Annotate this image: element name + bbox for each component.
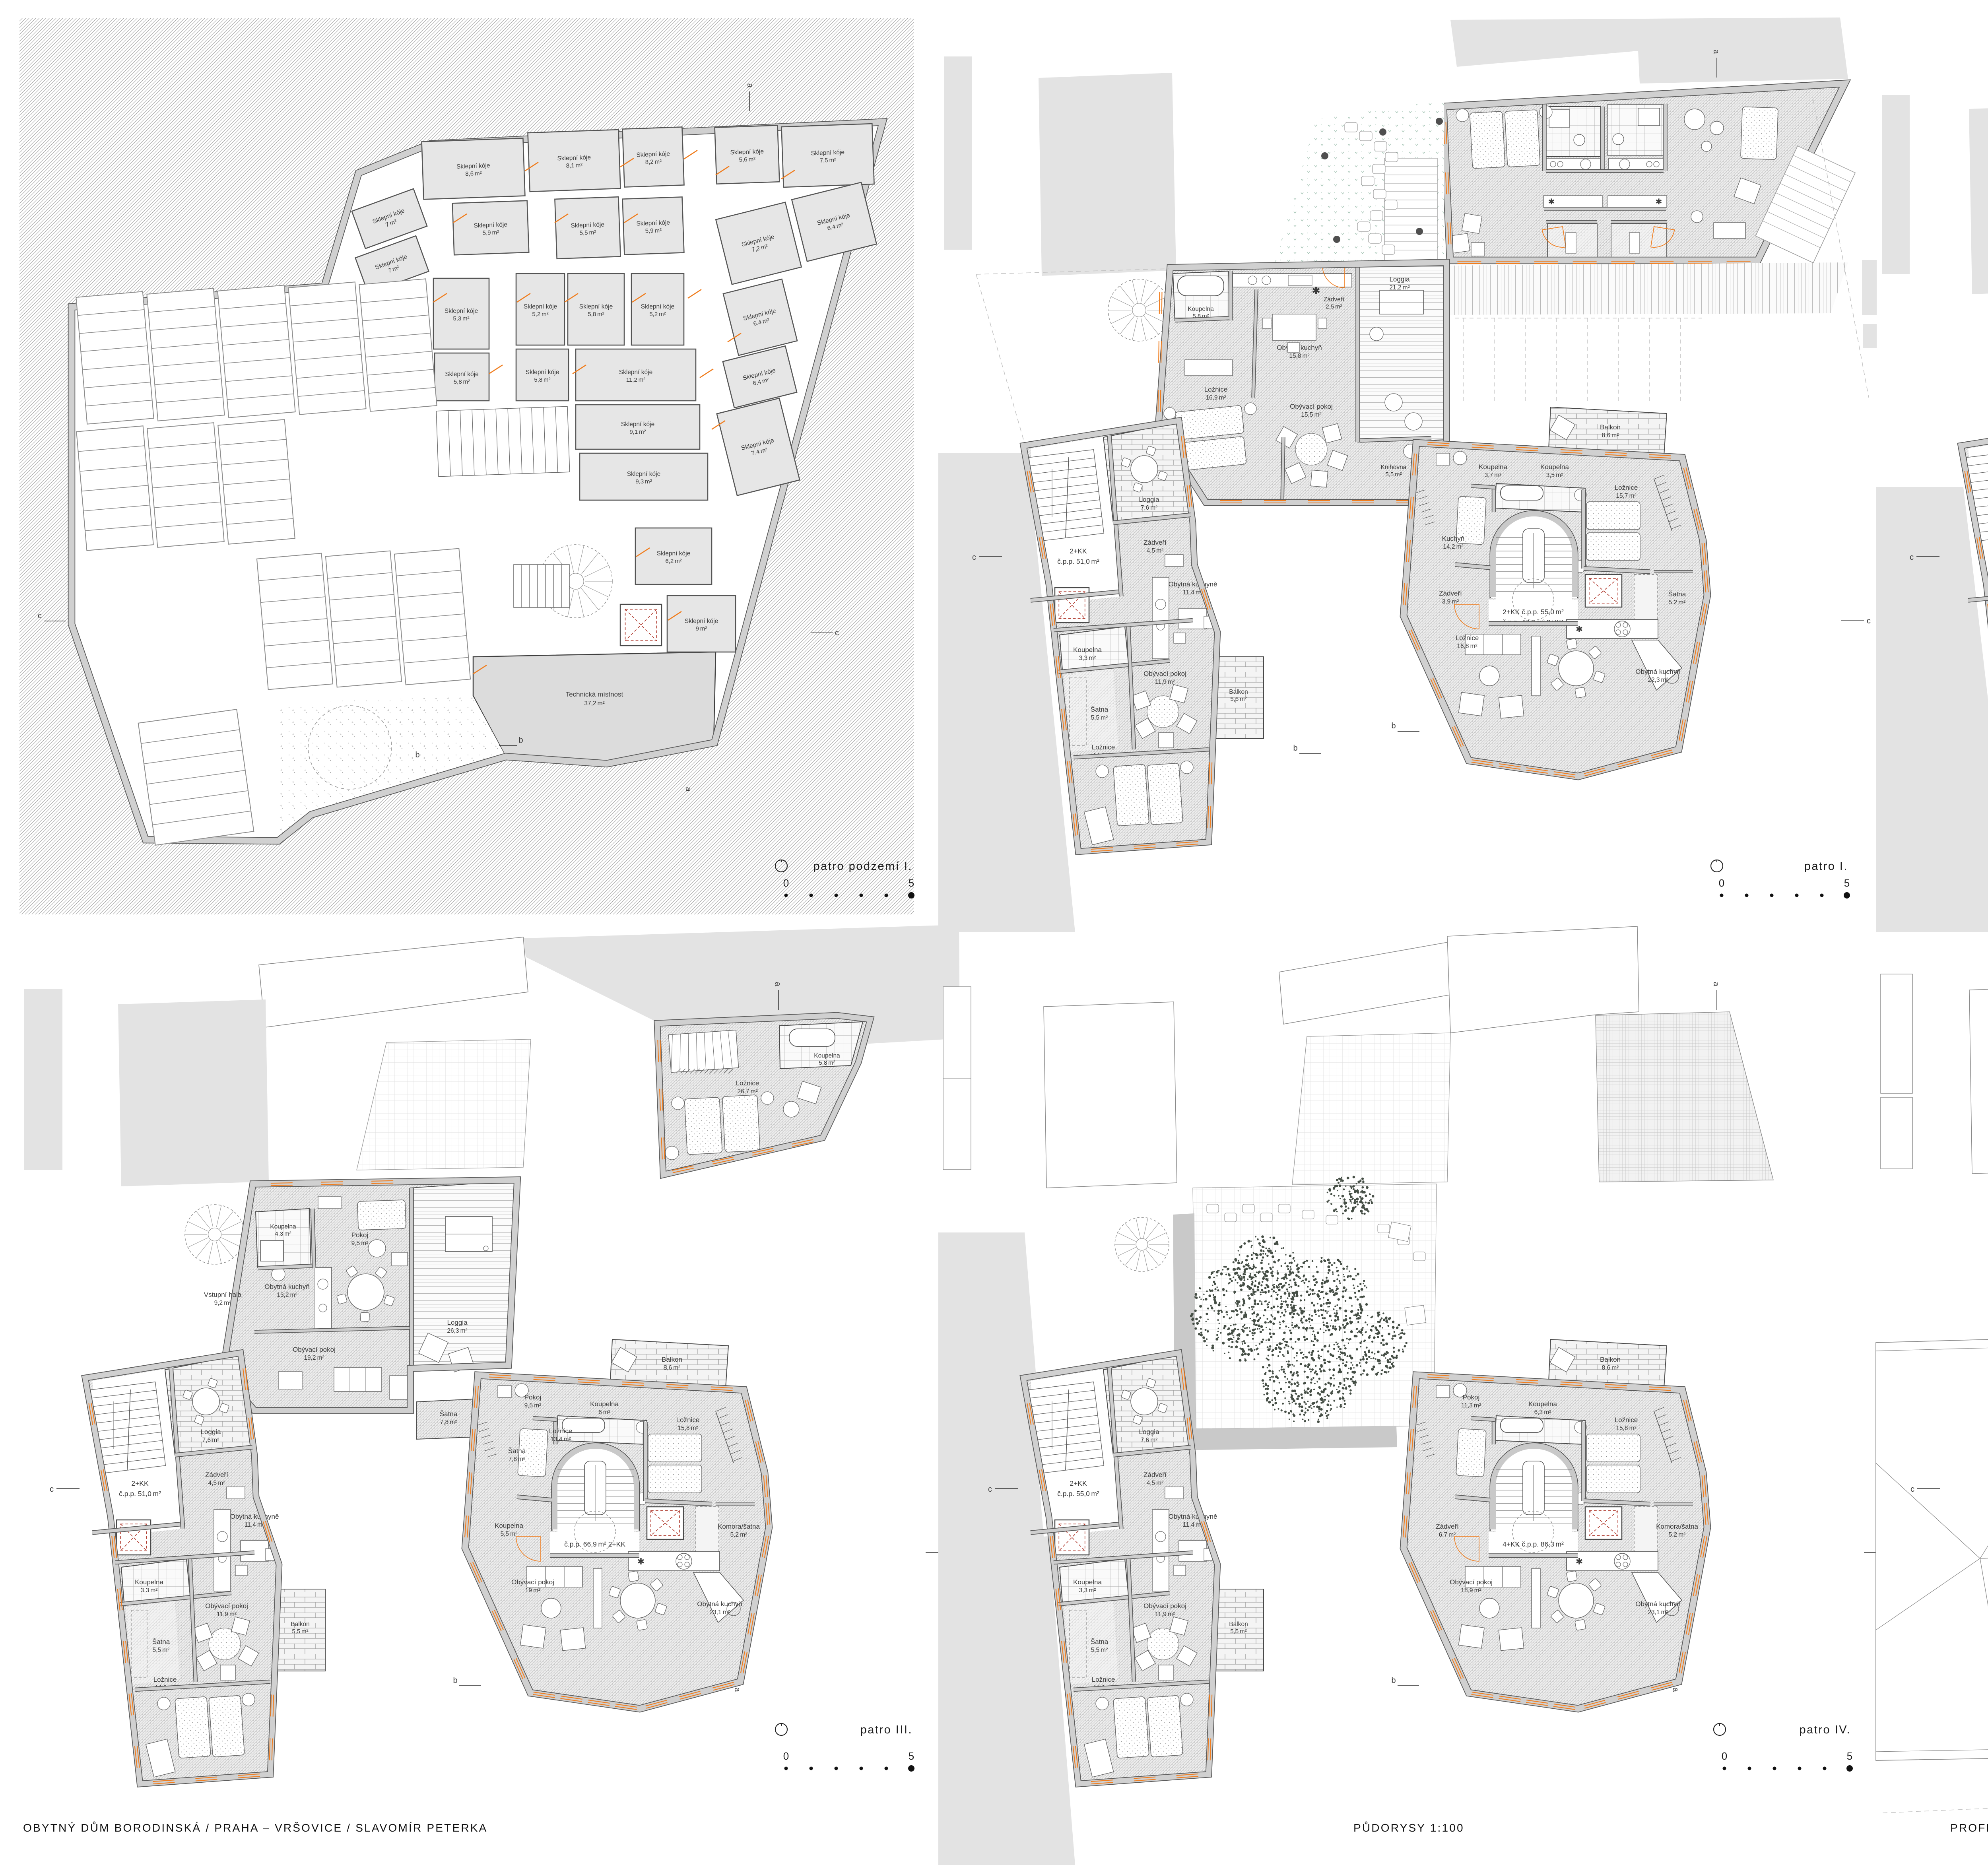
svg-text:26,7 m²: 26,7 m² xyxy=(737,1088,757,1095)
svg-text:5,3 m²: 5,3 m² xyxy=(453,315,469,322)
svg-text:Sklepní kóje: Sklepní kóje xyxy=(445,308,478,314)
svg-text:Obytná kuchyň: Obytná kuchyň xyxy=(697,1600,742,1608)
svg-text:Balkon: Balkon xyxy=(1229,689,1248,695)
svg-text:Sklepní kóje: Sklepní kóje xyxy=(474,221,507,229)
svg-text:5,5 m²: 5,5 m² xyxy=(579,229,596,236)
svg-text:Sklepní kóje: Sklepní kóje xyxy=(636,219,670,227)
svg-text:Šatna: Šatna xyxy=(1668,590,1686,598)
svg-text:a: a xyxy=(1712,49,1720,54)
svg-text:Kuchyň: Kuchyň xyxy=(1442,535,1465,542)
svg-text:Koupelna: Koupelna xyxy=(590,1400,619,1408)
svg-text:8,6 m²: 8,6 m² xyxy=(465,170,482,177)
svg-text:Ložnice: Ložnice xyxy=(1615,1416,1638,1424)
svg-text:b: b xyxy=(1293,744,1297,753)
svg-text:Koupelna: Koupelna xyxy=(135,1578,163,1586)
svg-text:6 m²: 6 m² xyxy=(598,1409,610,1416)
svg-text:3,9 m²: 3,9 m² xyxy=(1442,598,1459,605)
svg-text:Zádveří: Zádveří xyxy=(1143,539,1167,546)
svg-text:Obývací pokoj: Obývací pokoj xyxy=(205,1602,248,1610)
svg-text:Ložnice: Ložnice xyxy=(1092,743,1115,751)
svg-text:Pokoj: Pokoj xyxy=(524,1393,542,1401)
svg-text:5,2 m²: 5,2 m² xyxy=(532,311,548,318)
svg-text:a: a xyxy=(1712,982,1720,986)
svg-text:Obytná kuchyň: Obytná kuchyň xyxy=(264,1283,309,1291)
svg-text:b: b xyxy=(1391,1676,1396,1685)
svg-text:5,2 m²: 5,2 m² xyxy=(1669,599,1686,606)
svg-text:Obývací pokoj: Obývací pokoj xyxy=(1290,403,1333,410)
svg-text:Sklepní kóje: Sklepní kóje xyxy=(657,550,690,557)
svg-text:patro podzemí I.: patro podzemí I. xyxy=(813,860,912,873)
svg-text:5,2 m²: 5,2 m² xyxy=(730,1531,747,1538)
svg-text:Sklepní kóje: Sklepní kóje xyxy=(627,471,660,477)
svg-text:7,6 m²: 7,6 m² xyxy=(1141,505,1158,511)
svg-text:11,9 m²: 11,9 m² xyxy=(1155,1611,1175,1618)
svg-text:Obývací pokoj: Obývací pokoj xyxy=(293,1346,336,1353)
svg-text:5,8 m²: 5,8 m² xyxy=(819,1060,835,1066)
svg-text:Sklepní kóje: Sklepní kóje xyxy=(456,162,490,170)
svg-text:3,5 m²: 3,5 m² xyxy=(1546,472,1563,479)
svg-text:✱: ✱ xyxy=(1312,285,1320,297)
svg-text:9,2 m²: 9,2 m² xyxy=(214,1300,231,1306)
svg-text:23,1 m²: 23,1 m² xyxy=(1648,1609,1668,1616)
svg-text:a: a xyxy=(1671,1687,1680,1692)
svg-text:Sklepní kóje: Sklepní kóje xyxy=(641,303,674,310)
svg-text:č.p.p. 51,0 m²: č.p.p. 51,0 m² xyxy=(1057,557,1099,565)
svg-text:0: 0 xyxy=(783,1750,789,1762)
svg-text:Ložnice: Ložnice xyxy=(736,1079,759,1087)
svg-text:5,5 m²: 5,5 m² xyxy=(1385,471,1402,478)
svg-text:Šatna: Šatna xyxy=(1091,706,1109,713)
svg-text:5: 5 xyxy=(1847,1750,1852,1762)
svg-text:a: a xyxy=(733,1687,742,1692)
svg-text:7,8 m²: 7,8 m² xyxy=(440,1419,457,1426)
svg-text:Knihovna: Knihovna xyxy=(1381,464,1407,471)
svg-text:5,8 m²: 5,8 m² xyxy=(588,311,604,318)
svg-text:Sklepní kóje: Sklepní kóje xyxy=(526,369,559,376)
svg-text:2+KK č.p.p. 55,0 m²: 2+KK č.p.p. 55,0 m² xyxy=(1503,608,1564,616)
svg-text:19 m²: 19 m² xyxy=(525,1587,540,1594)
svg-text:21,2 m²: 21,2 m² xyxy=(1389,284,1409,291)
svg-text:b: b xyxy=(453,1676,457,1685)
svg-text:Obytná kuchyň: Obytná kuchyň xyxy=(1635,1600,1680,1608)
svg-text:Koupelna: Koupelna xyxy=(814,1052,840,1059)
svg-text:18,9 m²: 18,9 m² xyxy=(1461,1587,1481,1594)
svg-text:Loggia: Loggia xyxy=(200,1428,221,1436)
svg-text:2+KK: 2+KK xyxy=(131,1479,149,1487)
svg-text:Šatna: Šatna xyxy=(1091,1638,1109,1646)
svg-text:8,6 m²: 8,6 m² xyxy=(1602,432,1619,439)
svg-text:c: c xyxy=(1910,553,1914,562)
svg-text:Sklepní kóje: Sklepní kóje xyxy=(445,371,478,378)
svg-text:11,9 m²: 11,9 m² xyxy=(217,1611,237,1618)
svg-text:Komora/šatna: Komora/šatna xyxy=(1656,1523,1698,1530)
svg-text:Ložnice: Ložnice xyxy=(1615,484,1638,491)
svg-text:Ložnice: Ložnice xyxy=(1092,1676,1115,1683)
svg-text:Balkon: Balkon xyxy=(1600,423,1621,431)
svg-text:Sklepní kóje: Sklepní kóje xyxy=(524,303,557,310)
svg-text:15,7 m²: 15,7 m² xyxy=(1616,493,1636,499)
svg-text:Obývací pokoj: Obývací pokoj xyxy=(1143,1602,1186,1610)
svg-text:Koupelna: Koupelna xyxy=(1540,463,1569,471)
svg-text:8,6 m²: 8,6 m² xyxy=(1602,1364,1619,1371)
svg-text:Sklepní kóje: Sklepní kóje xyxy=(636,151,670,159)
svg-text:22,3 m²: 22,3 m² xyxy=(1648,677,1668,683)
svg-text:Pokoj: Pokoj xyxy=(351,1231,369,1239)
svg-text:Obytná kuchyně: Obytná kuchyně xyxy=(1169,1513,1217,1520)
svg-text:b: b xyxy=(518,736,523,745)
svg-text:3,7 m²: 3,7 m² xyxy=(1485,472,1502,479)
svg-text:2+KK: 2+KK xyxy=(1070,547,1087,555)
svg-text:Sklepní kóje: Sklepní kóje xyxy=(579,303,613,310)
svg-text:patro IV.: patro IV. xyxy=(1800,1723,1851,1736)
svg-text:5,8 m²: 5,8 m² xyxy=(454,378,470,385)
svg-text:c: c xyxy=(1910,1485,1914,1494)
svg-text:c: c xyxy=(988,1485,992,1494)
svg-text:11,3 m²: 11,3 m² xyxy=(1461,1402,1481,1409)
svg-text:14,2 m²: 14,2 m² xyxy=(1443,543,1463,550)
svg-text:6,3 m²: 6,3 m² xyxy=(1534,1409,1551,1416)
svg-text:8,6 m²: 8,6 m² xyxy=(664,1364,681,1371)
svg-text:7,8 m²: 7,8 m² xyxy=(509,1456,526,1463)
svg-text:5,5 m²: 5,5 m² xyxy=(1230,696,1246,703)
svg-text:Balkon: Balkon xyxy=(1600,1356,1621,1363)
svg-text:č.p.p. 51,0 m²: č.p.p. 51,0 m² xyxy=(119,1490,161,1498)
svg-text:5,5 m²: 5,5 m² xyxy=(501,1531,518,1537)
svg-text:Loggia: Loggia xyxy=(1139,1428,1159,1436)
svg-text:5,9 m²: 5,9 m² xyxy=(645,227,662,234)
svg-text:PŮDORYSY 1:100: PŮDORYSY 1:100 xyxy=(1353,1821,1464,1834)
svg-text:Balkon: Balkon xyxy=(1229,1621,1248,1628)
svg-text:9,5 m²: 9,5 m² xyxy=(524,1402,542,1409)
svg-text:Sklepní kóje: Sklepní kóje xyxy=(571,221,604,229)
svg-text:c: c xyxy=(835,629,839,637)
svg-text:č.p.p. 66,9 m² 2+KK: č.p.p. 66,9 m² 2+KK xyxy=(564,1540,625,1548)
svg-text:2,5 m²: 2,5 m² xyxy=(1326,303,1342,310)
svg-text:Zádveří: Zádveří xyxy=(205,1471,228,1479)
svg-text:Obytná kuchyň: Obytná kuchyň xyxy=(1635,668,1680,675)
svg-text:Loggia: Loggia xyxy=(1389,276,1410,283)
svg-text:6,2 m²: 6,2 m² xyxy=(665,558,681,565)
svg-text:Koupelna: Koupelna xyxy=(1528,1400,1557,1408)
svg-text:15,8 m²: 15,8 m² xyxy=(1289,353,1309,359)
svg-text:11,2 m²: 11,2 m² xyxy=(626,376,646,383)
svg-text:0: 0 xyxy=(1719,877,1724,889)
svg-text:5,2 m²: 5,2 m² xyxy=(649,311,666,318)
svg-text:OBYTNÝ DŮM BORODINSKÁ / PRAHA: OBYTNÝ DŮM BORODINSKÁ / PRAHA – VRŠOVICE… xyxy=(23,1821,488,1834)
svg-text:Technická místnost: Technická místnost xyxy=(566,691,623,698)
svg-text:✱: ✱ xyxy=(1548,198,1555,206)
svg-text:7,5 m²: 7,5 m² xyxy=(819,157,836,164)
svg-text:8,2 m²: 8,2 m² xyxy=(645,158,662,165)
svg-text:Ložnice: Ložnice xyxy=(1204,386,1228,393)
svg-text:4,3 m²: 4,3 m² xyxy=(275,1230,291,1237)
svg-text:Sklepní kóje: Sklepní kóje xyxy=(811,149,845,157)
svg-text:5: 5 xyxy=(1844,877,1850,889)
svg-text:Obývací pokoj: Obývací pokoj xyxy=(511,1578,554,1586)
svg-text:Šatna: Šatna xyxy=(508,1447,526,1455)
svg-text:Obývací pokoj: Obývací pokoj xyxy=(1450,1578,1493,1586)
svg-text:✱: ✱ xyxy=(1656,198,1662,206)
svg-text:4,5 m²: 4,5 m² xyxy=(208,1480,225,1487)
svg-text:3,3 m²: 3,3 m² xyxy=(1079,1587,1096,1594)
svg-text:a: a xyxy=(745,83,754,88)
svg-text:5,6 m²: 5,6 m² xyxy=(739,156,755,163)
svg-text:4+KK č.p.p. 86,3 m²: 4+KK č.p.p. 86,3 m² xyxy=(1503,1540,1564,1548)
svg-text:23,1 m²: 23,1 m² xyxy=(709,1609,730,1616)
svg-text:Balkon: Balkon xyxy=(662,1356,682,1363)
svg-text:5,5 m²: 5,5 m² xyxy=(1230,1628,1246,1635)
svg-text:6,7 m²: 6,7 m² xyxy=(1439,1531,1456,1538)
svg-text:č.p.p. 55,0 m²: č.p.p. 55,0 m² xyxy=(1057,1490,1099,1498)
svg-text:3,3 m²: 3,3 m² xyxy=(1079,655,1096,662)
svg-text:Obytná kuchyně: Obytná kuchyně xyxy=(1169,580,1217,588)
svg-text:b: b xyxy=(415,751,419,759)
svg-text:Obývací pokoj: Obývací pokoj xyxy=(1143,670,1186,677)
svg-text:c: c xyxy=(1867,617,1871,625)
svg-text:5,5 m²: 5,5 m² xyxy=(1091,1647,1108,1653)
svg-text:c: c xyxy=(50,1485,54,1494)
svg-text:5,8 m²: 5,8 m² xyxy=(534,376,550,383)
svg-text:9,1 m²: 9,1 m² xyxy=(629,429,646,435)
svg-text:c: c xyxy=(972,553,976,562)
svg-text:5,9 m²: 5,9 m² xyxy=(482,229,499,236)
svg-text:26,3 m²: 26,3 m² xyxy=(447,1327,467,1334)
svg-text:13,2 m²: 13,2 m² xyxy=(277,1292,297,1298)
svg-text:37,2 m²: 37,2 m² xyxy=(584,700,604,707)
svg-text:11,9 m²: 11,9 m² xyxy=(1155,679,1175,685)
svg-text:0: 0 xyxy=(1722,1750,1727,1762)
svg-text:3,3 m²: 3,3 m² xyxy=(141,1587,158,1594)
svg-text:9,5 m²: 9,5 m² xyxy=(351,1240,369,1247)
svg-text:2+KK: 2+KK xyxy=(1070,1479,1087,1487)
svg-text:Ložnice: Ložnice xyxy=(549,1427,573,1435)
svg-text:15,8 m²: 15,8 m² xyxy=(678,1425,698,1432)
svg-text:16,9 m²: 16,9 m² xyxy=(1206,394,1226,401)
svg-text:a: a xyxy=(773,982,782,986)
svg-text:b: b xyxy=(1391,722,1396,730)
svg-text:5,5 m²: 5,5 m² xyxy=(153,1647,170,1653)
svg-text:9 m²: 9 m² xyxy=(696,625,707,632)
svg-text:13,4 m²: 13,4 m² xyxy=(550,1436,571,1443)
svg-text:Komora/šatna: Komora/šatna xyxy=(718,1523,760,1530)
svg-text:Zádveří: Zádveří xyxy=(1143,1471,1167,1479)
svg-text:15,5 m²: 15,5 m² xyxy=(1301,411,1321,418)
svg-text:Ložnice: Ložnice xyxy=(676,1416,700,1424)
svg-text:Sklepní kóje: Sklepní kóje xyxy=(619,369,652,376)
svg-text:Koupelna: Koupelna xyxy=(1073,1578,1102,1586)
svg-text:15,8 m²: 15,8 m² xyxy=(1616,1425,1636,1432)
svg-text:Ložnice: Ložnice xyxy=(1456,634,1479,642)
svg-text:5,5 m²: 5,5 m² xyxy=(292,1628,308,1635)
svg-text:Balkon: Balkon xyxy=(291,1621,309,1628)
svg-text:Zádveří: Zádveří xyxy=(1324,296,1345,303)
svg-text:PROFESOR MIROSLAV ŠIK / ASISTE: PROFESOR MIROSLAV ŠIK / ASISTENT JINDŘIC… xyxy=(1950,1822,1988,1834)
svg-text:Ložnice: Ložnice xyxy=(153,1676,177,1683)
svg-text:Vstupní hala: Vstupní hala xyxy=(204,1291,242,1298)
svg-text:5,5 m²: 5,5 m² xyxy=(1091,714,1108,721)
svg-text:a: a xyxy=(684,787,693,792)
svg-text:4,5 m²: 4,5 m² xyxy=(1147,547,1164,554)
svg-text:9,3 m²: 9,3 m² xyxy=(635,478,652,485)
svg-text:16,8 m²: 16,8 m² xyxy=(1457,643,1477,650)
svg-text:Obytná kuchyně: Obytná kuchyně xyxy=(230,1513,279,1520)
svg-text:Koupelna: Koupelna xyxy=(1479,463,1507,471)
svg-text:5: 5 xyxy=(909,877,914,889)
svg-text:4,5 m²: 4,5 m² xyxy=(1147,1480,1164,1487)
svg-text:Šatna: Šatna xyxy=(152,1638,170,1646)
svg-text:patro I.: patro I. xyxy=(1804,860,1848,873)
svg-text:Zádveří: Zádveří xyxy=(1436,1523,1459,1530)
svg-text:5: 5 xyxy=(909,1750,914,1762)
svg-text:Šatna: Šatna xyxy=(440,1410,458,1418)
svg-text:Loggia: Loggia xyxy=(1139,496,1159,503)
svg-text:19,2 m²: 19,2 m² xyxy=(304,1355,324,1361)
svg-text:Loggia: Loggia xyxy=(447,1319,468,1326)
svg-text:Sklepní kóje: Sklepní kóje xyxy=(685,618,718,625)
svg-text:8,1 m²: 8,1 m² xyxy=(566,162,582,169)
svg-text:Zádveří: Zádveří xyxy=(1439,590,1462,597)
svg-text:Sklepní kóje: Sklepní kóje xyxy=(621,421,654,428)
svg-text:Koupelna: Koupelna xyxy=(1188,306,1214,312)
svg-text:Sklepní kóje: Sklepní kóje xyxy=(557,154,591,162)
svg-text:0: 0 xyxy=(783,877,789,889)
svg-text:7,6 m²: 7,6 m² xyxy=(202,1437,219,1444)
svg-text:Koupelna: Koupelna xyxy=(1073,646,1102,654)
svg-text:Pokoj: Pokoj xyxy=(1463,1393,1480,1401)
svg-text:7,6 m²: 7,6 m² xyxy=(1141,1437,1158,1444)
svg-text:patro III.: patro III. xyxy=(860,1723,912,1736)
svg-text:Koupelna: Koupelna xyxy=(270,1223,296,1230)
svg-text:c: c xyxy=(38,611,42,620)
svg-text:Sklepní kóje: Sklepní kóje xyxy=(730,148,764,156)
svg-text:5,2 m²: 5,2 m² xyxy=(1669,1531,1686,1538)
svg-text:Koupelna: Koupelna xyxy=(495,1522,523,1529)
